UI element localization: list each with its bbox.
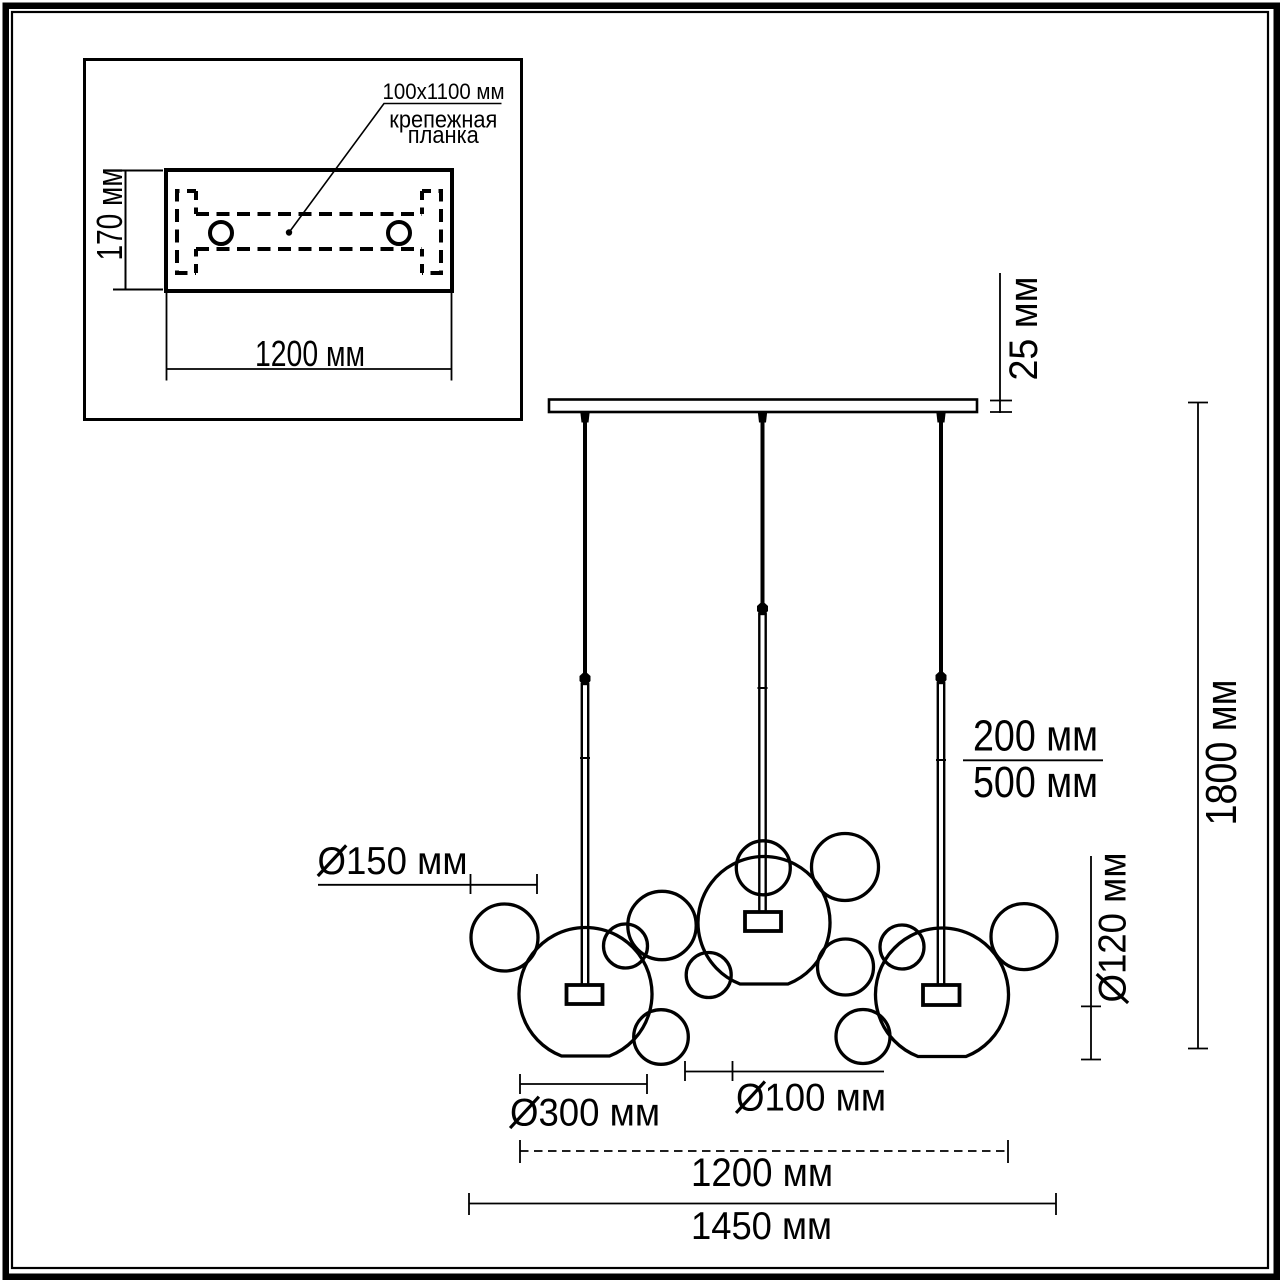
svg-text:1450 мм: 1450 мм	[691, 1205, 832, 1248]
svg-text:170 мм: 170 мм	[89, 168, 130, 261]
svg-text:1800 мм: 1800 мм	[1197, 680, 1246, 826]
svg-text:O120 мм: O120 мм	[1092, 853, 1135, 1003]
svg-text:O150 мм: O150 мм	[318, 840, 468, 883]
svg-text:200 мм: 200 мм	[973, 712, 1098, 761]
svg-text:O100 мм: O100 мм	[736, 1077, 886, 1120]
svg-text:500 мм: 500 мм	[973, 758, 1098, 807]
svg-text:25 мм: 25 мм	[1002, 277, 1046, 381]
svg-text:1200 мм: 1200 мм	[255, 333, 365, 374]
svg-text:O300 мм: O300 мм	[510, 1092, 660, 1135]
svg-text:планка: планка	[408, 122, 480, 149]
svg-text:1200 мм: 1200 мм	[691, 1151, 833, 1195]
svg-text:100x1100 мм: 100x1100 мм	[383, 79, 505, 104]
